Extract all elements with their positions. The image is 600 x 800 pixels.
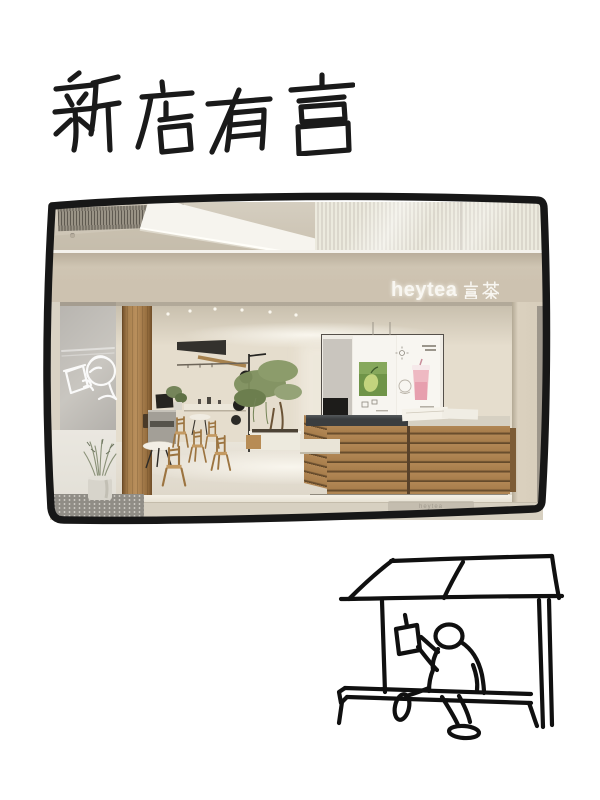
interior-decor: [50, 202, 543, 520]
photo-content: heytea 喜茶: [50, 202, 543, 520]
storefront-photo: heytea 喜茶: [36, 184, 564, 532]
title-calligraphy-svg: [45, 70, 355, 156]
bench: [339, 688, 537, 726]
planter-box: [246, 429, 340, 454]
char-you: [208, 90, 270, 152]
straw: [405, 615, 407, 626]
spotlights: [166, 307, 297, 316]
white-pot-plant: [84, 439, 116, 500]
person-drinking: [392, 615, 484, 739]
cup: [396, 625, 420, 654]
counter-menus: [402, 407, 478, 421]
service-cabinet: [148, 393, 176, 444]
char-xin: [55, 73, 119, 150]
char-dian: [138, 82, 192, 152]
char-xi: [291, 75, 353, 154]
pink-drink-poster-art: [396, 345, 437, 408]
stall-sketch: [330, 545, 580, 760]
page-title: 新店有喜: [45, 70, 355, 156]
dark-soffit: [177, 340, 248, 368]
fruit-poster-art: [359, 322, 390, 411]
neon-drinking-figure-icon: [62, 348, 116, 399]
stall-roof: [341, 556, 562, 599]
